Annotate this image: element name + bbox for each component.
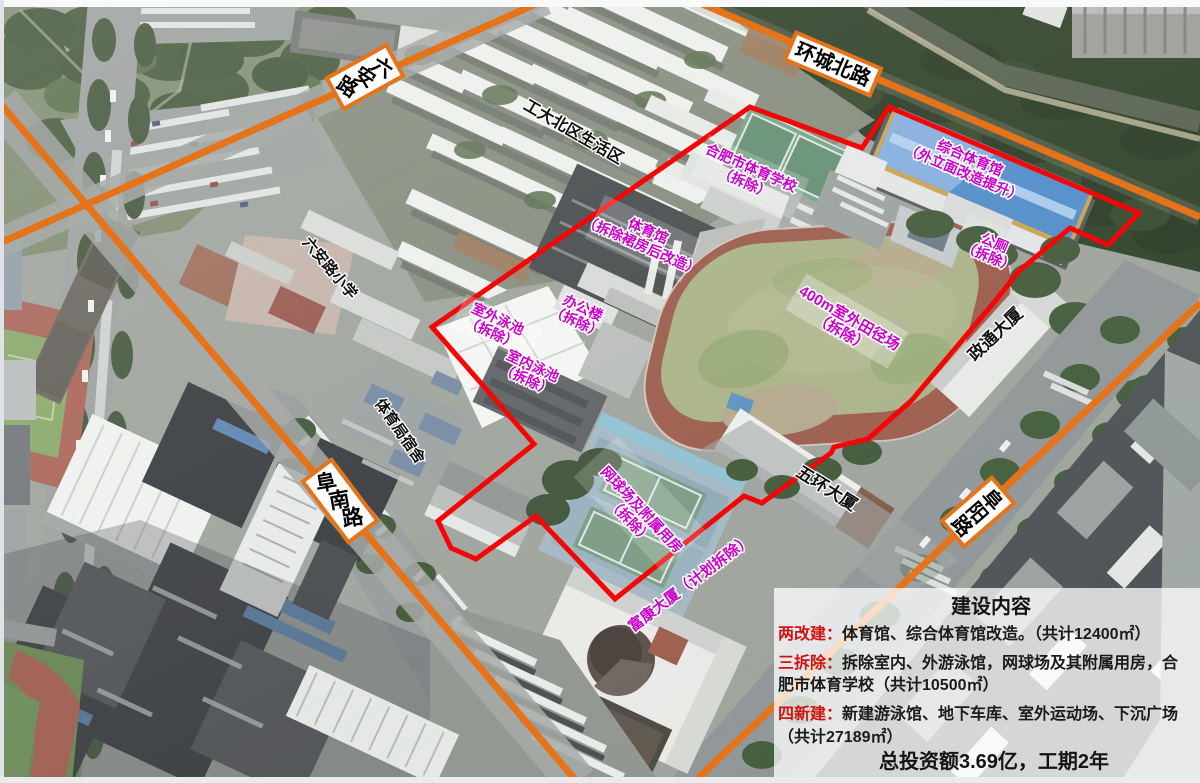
svg-text:两改建：体育馆、综合体育馆改造。（共计12400㎡）: 两改建：体育馆、综合体育馆改造。（共计12400㎡） (778, 624, 1151, 643)
svg-text:建设内容: 建设内容 (951, 594, 1031, 618)
svg-text:三拆除：拆除室内、外游泳馆，网球场及其附属用房，合: 三拆除：拆除室内、外游泳馆，网球场及其附属用房，合 (778, 653, 1179, 672)
svg-text:四新建：新建游泳馆、地下车库、室外运动场、下沉广场: 四新建：新建游泳馆、地下车库、室外运动场、下沉广场 (778, 704, 1178, 723)
svg-text:总投资额3.69亿，工期2年: 总投资额3.69亿，工期2年 (879, 749, 1109, 773)
svg-text:（共计27189㎡）: （共计27189㎡） (778, 727, 903, 746)
svg-text:肥市体育学校（共计10500㎡）: 肥市体育学校（共计10500㎡） (778, 675, 999, 694)
